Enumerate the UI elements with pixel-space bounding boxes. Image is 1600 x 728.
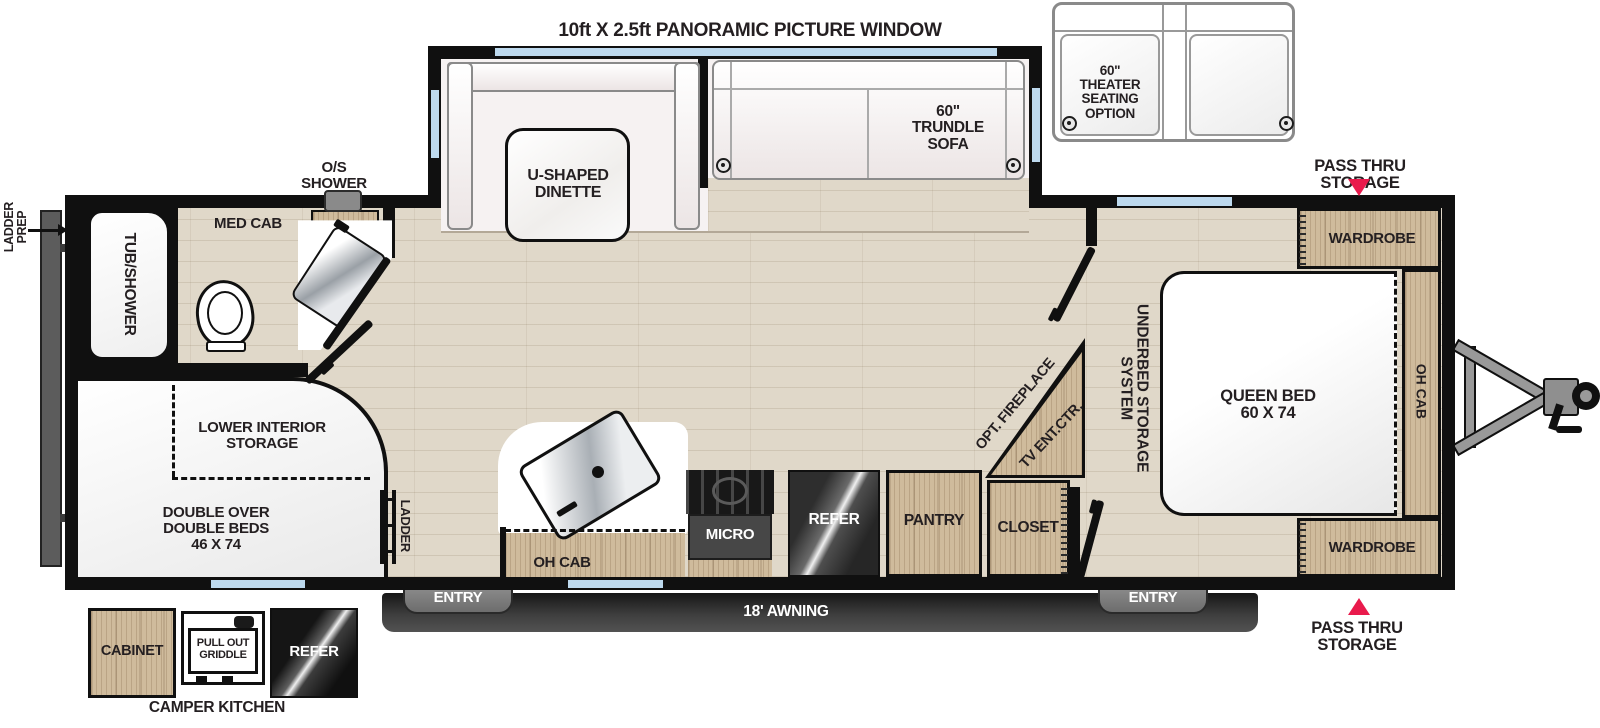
- bunk-ladder-rung2: [382, 524, 394, 527]
- double-beds-label: DOUBLE OVER DOUBLE BEDS 46 X 74: [146, 505, 286, 552]
- theater-speaker-right: [1279, 116, 1294, 131]
- ladder-prep-rail: [40, 210, 62, 567]
- camper-griddle-tank: [234, 616, 254, 628]
- floorplan-canvas: 10ft X 2.5ft PANORAMIC PICTURE WINDOW 18…: [0, 0, 1600, 728]
- pass-thru-top-arrow: [1348, 179, 1370, 196]
- toilet-base: [206, 341, 246, 352]
- theater-seating-label: 60" THEATER SEATING OPTION: [1064, 64, 1156, 121]
- bunk-window: [211, 580, 305, 588]
- pantry-label: PANTRY: [886, 513, 982, 529]
- refer-label: REFER: [788, 512, 880, 528]
- kitchen-faucet: [592, 466, 604, 478]
- tub-shower-label: TUB/SHOWER: [121, 209, 137, 359]
- kitchen-window: [568, 580, 663, 588]
- lower-storage-dash-h: [172, 477, 370, 480]
- wall-top-right: [1036, 195, 1455, 208]
- sofa-armrest-left-line: [730, 62, 732, 178]
- dinette-bench-right: [674, 62, 700, 230]
- sofa-center-line: [867, 88, 869, 178]
- os-shower-fixture: [324, 190, 362, 212]
- med-cab-label: MED CAB: [203, 216, 293, 232]
- slideout-window-left: [431, 90, 439, 158]
- hitch-ball-center: [1580, 390, 1592, 402]
- dinette-bench-back: [447, 62, 700, 92]
- camper-griddle-knob1: [196, 676, 207, 685]
- ladder-prep-label: LADDER PREP: [3, 192, 29, 262]
- bunk-ladder-rung3: [382, 550, 394, 553]
- trundle-sofa-label: 60" TRUNDLE SOFA: [888, 104, 1008, 153]
- lower-storage-label: LOWER INTERIOR STORAGE: [182, 420, 342, 452]
- dinette-bench-left: [447, 62, 473, 230]
- kitchen-oh-cab-label: OH CAB: [512, 555, 612, 571]
- wardrobe-bottom-label: WARDROBE: [1302, 540, 1442, 556]
- theater-console-right-line: [1185, 5, 1187, 139]
- hitch-jack-foot: [1556, 426, 1582, 433]
- wall-stub-bedroom-door: [1086, 208, 1097, 246]
- wardrobe-top-label: WARDROBE: [1302, 231, 1442, 247]
- awning-label: 18' AWNING: [696, 604, 876, 620]
- camper-griddle-knob2: [222, 676, 233, 685]
- toilet-seat: [207, 291, 243, 335]
- camper-refer-label: REFER: [270, 644, 358, 660]
- slideout-window-right: [1032, 88, 1040, 162]
- wall-right: [1442, 195, 1455, 590]
- bedroom-window: [1117, 197, 1232, 206]
- pass-thru-bottom-arrow: [1348, 598, 1370, 615]
- closet-label: CLOSET: [985, 520, 1071, 536]
- kitchen-counter-endpanel: [500, 527, 506, 577]
- micro-base-cab: [688, 560, 772, 577]
- kitchen-counter-dash: [505, 529, 685, 532]
- dinette-label: U-SHAPED DINETTE: [507, 168, 629, 202]
- wall-left: [65, 195, 78, 590]
- stove-burner: [712, 477, 748, 505]
- theater-seat-right: [1189, 34, 1289, 136]
- sofa-speaker-right: [1006, 158, 1021, 173]
- camper-griddle-label: PULL OUT GRIDDLE: [188, 638, 258, 661]
- ladder-prep-arrow-shaft: [28, 229, 60, 232]
- bedroom-oh-cab-label: OH CAB: [1414, 351, 1429, 431]
- lower-storage-dash-v: [172, 385, 175, 477]
- theater-headrest-line: [1055, 30, 1292, 32]
- camper-kitchen-title: CAMPER KITCHEN: [127, 700, 307, 716]
- ladder-label: LADDER: [398, 491, 412, 561]
- sofa-speaker-left: [716, 158, 731, 173]
- entry-left-label: ENTRY: [403, 590, 513, 606]
- queen-bed-label: QUEEN BED 60 X 74: [1198, 388, 1338, 423]
- bunk-ladder-rung1: [382, 498, 394, 501]
- underbed-storage-label: UNDERBED STORAGE SYSTEM: [1117, 273, 1150, 503]
- theater-console-left-line: [1162, 5, 1164, 139]
- micro-label: MICRO: [688, 527, 772, 543]
- entry-right-label: ENTRY: [1098, 590, 1208, 606]
- camper-cabinet-label: CABINET: [88, 644, 176, 659]
- slideout-sofa-floor: [708, 178, 1029, 233]
- slideout-window-top: [495, 48, 997, 56]
- os-shower-label: O/S SHOWER: [289, 160, 379, 192]
- panoramic-window-title: 10ft X 2.5ft PANORAMIC PICTURE WINDOW: [490, 21, 1010, 41]
- pass-thru-bottom-label: PASS THRU STORAGE: [1272, 620, 1442, 655]
